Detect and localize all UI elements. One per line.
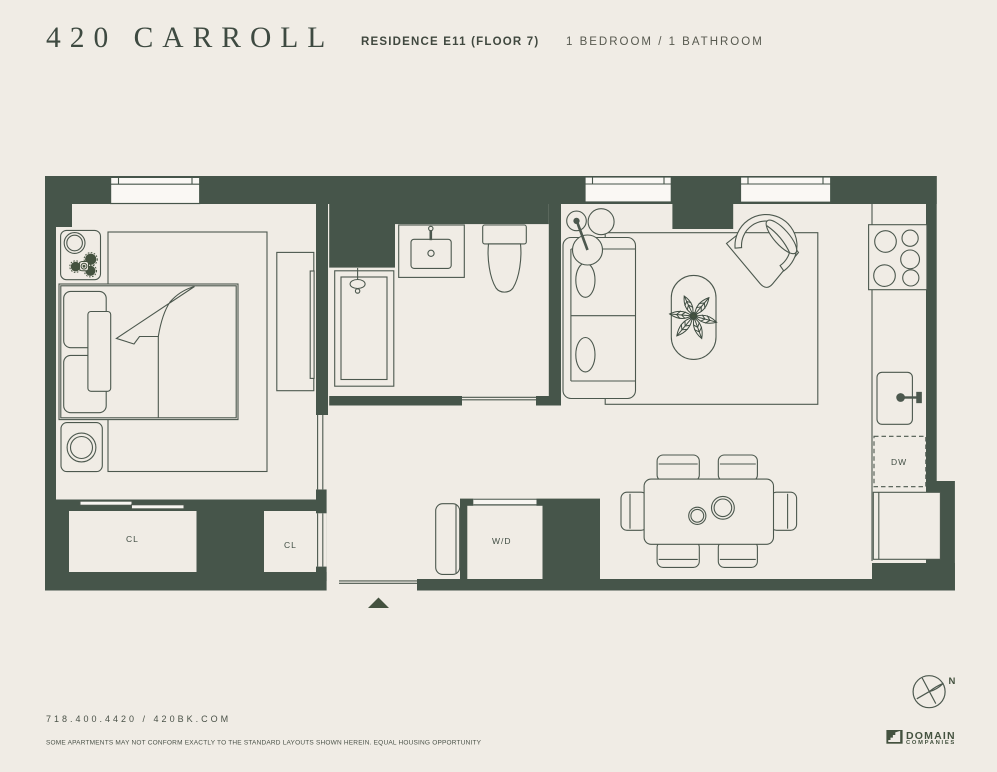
- svg-text:CL: CL: [126, 534, 139, 544]
- svg-text:RESIDENCE E11 (FLOOR 7): RESIDENCE E11 (FLOOR 7): [361, 36, 539, 48]
- svg-text:W/D: W/D: [492, 536, 512, 546]
- svg-text:N: N: [949, 676, 956, 687]
- svg-text:1 BEDROOM / 1 BATHROOM: 1 BEDROOM / 1 BATHROOM: [566, 36, 764, 48]
- svg-text:DW: DW: [891, 457, 907, 467]
- svg-text:420 CARROLL: 420 CARROLL: [46, 22, 334, 54]
- svg-text:CL: CL: [284, 540, 297, 550]
- svg-text:SOME APARTMENTS MAY NOT CONFOR: SOME APARTMENTS MAY NOT CONFORM EXACTLY …: [46, 740, 482, 747]
- svg-text:COMPANIES: COMPANIES: [906, 740, 956, 746]
- svg-text:718.400.4420 / 420BK.COM: 718.400.4420 / 420BK.COM: [46, 714, 231, 724]
